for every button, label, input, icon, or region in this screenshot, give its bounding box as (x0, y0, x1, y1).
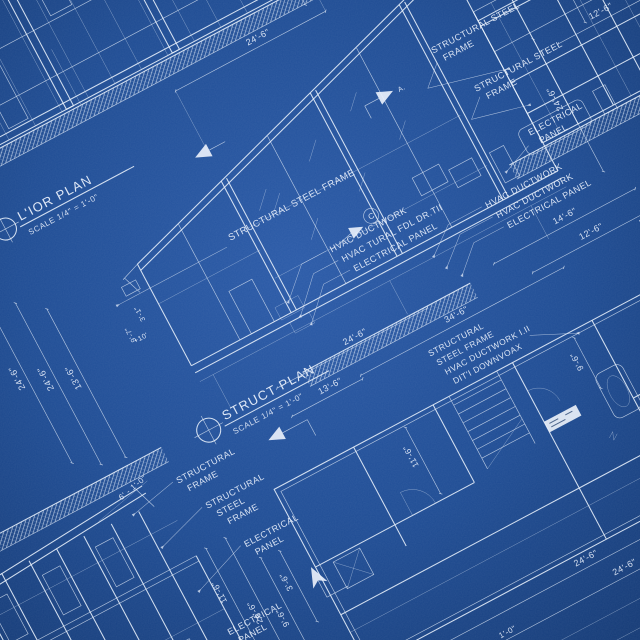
blueprint-screenshot: L'IOR PLAN SCALE 1/4" = 1'-0" (0, 0, 640, 640)
blueprint-canvas: L'IOR PLAN SCALE 1/4" = 1'-0" (0, 0, 640, 640)
paper-grain-texture (0, 0, 640, 640)
